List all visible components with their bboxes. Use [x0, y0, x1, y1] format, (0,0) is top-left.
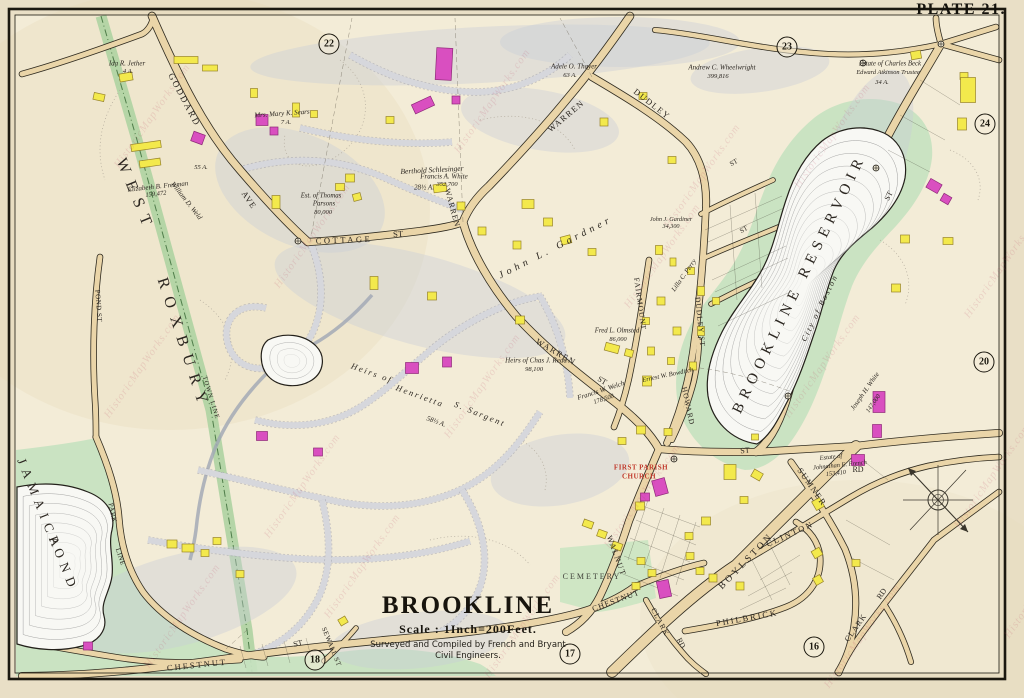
building-brick	[270, 127, 278, 135]
building-wood	[386, 117, 394, 124]
building-wood	[958, 118, 967, 130]
building-wood	[696, 568, 704, 575]
building-wood	[668, 358, 675, 365]
building-wood	[433, 183, 447, 193]
building-wood	[167, 540, 177, 548]
building-wood	[698, 287, 705, 296]
building-wood	[648, 570, 656, 577]
building-wood	[910, 50, 921, 60]
building-wood	[544, 218, 553, 226]
surveyor-credit-line1: Surveyed and Compiled by French and Brya…	[370, 640, 566, 651]
building-wood	[588, 249, 596, 256]
building-brick	[443, 357, 452, 367]
building-wood	[428, 292, 437, 300]
building-wood	[670, 258, 676, 266]
building-wood	[656, 246, 663, 255]
building-wood	[740, 497, 748, 504]
building-wood	[636, 502, 645, 510]
building-wood	[513, 241, 521, 249]
building-wood	[336, 184, 345, 191]
building-wood	[688, 268, 695, 275]
building-wood	[702, 517, 711, 525]
building-wood	[713, 298, 720, 305]
building-wood	[236, 571, 244, 578]
building-wood	[182, 544, 194, 552]
building-wood	[174, 57, 198, 64]
building-brick	[256, 115, 268, 126]
small-pond	[261, 335, 322, 385]
building-wood	[686, 553, 694, 560]
jamaica-pond	[17, 484, 113, 650]
building-wood	[901, 235, 910, 243]
building-wood	[690, 362, 697, 370]
building-wood	[673, 327, 681, 335]
title-block: BROOKLINE Scale : 1Inch=200Feet. Surveye…	[370, 592, 566, 661]
atlas-plate-page: HistoricMapWorks.comHistoricMapWorks.com…	[0, 0, 1024, 698]
building-wood	[643, 376, 652, 386]
map-title: BROOKLINE	[370, 592, 566, 620]
building-wood	[522, 200, 534, 209]
building-wood	[478, 227, 486, 235]
building-wood	[516, 316, 525, 324]
building-wood	[213, 538, 221, 545]
building-wood	[311, 111, 318, 118]
building-brick	[257, 432, 268, 441]
building-wood	[639, 93, 647, 100]
building-wood	[709, 574, 717, 582]
surveyor-credit-line2: Civil Engineers.	[370, 651, 566, 662]
plate-number-label: PLATE 21.	[916, 1, 1006, 19]
building-wood	[201, 550, 209, 557]
building-wood	[664, 429, 672, 436]
building-wood	[752, 434, 759, 440]
building-wood	[657, 297, 665, 305]
building-brick	[641, 493, 650, 501]
building-wood	[698, 327, 705, 336]
building-wood	[648, 347, 655, 355]
building-brick	[435, 48, 453, 81]
building-wood	[346, 174, 355, 182]
building-wood	[685, 533, 693, 540]
building-wood	[618, 438, 626, 445]
building-wood	[293, 103, 300, 117]
building-wood	[632, 583, 640, 590]
building-brick	[84, 642, 93, 650]
building-wood	[637, 558, 645, 565]
building-wood	[251, 89, 258, 98]
building-wood	[272, 196, 280, 209]
building-brick	[314, 448, 323, 456]
building-wood	[600, 118, 608, 126]
building-wood	[370, 277, 378, 290]
building-brick	[406, 363, 419, 374]
building-brick	[873, 392, 885, 413]
map-scale: Scale : 1Inch=200Feet.	[370, 622, 566, 637]
building-wood	[943, 238, 953, 245]
building-brick	[873, 425, 882, 438]
building-wood	[892, 284, 901, 292]
building-wood	[852, 560, 860, 567]
building-brick	[452, 96, 460, 104]
building-wood	[961, 78, 976, 103]
building-wood	[203, 65, 218, 71]
building-brick	[852, 455, 865, 466]
building-wood	[668, 157, 676, 164]
building-wood	[637, 426, 646, 434]
building-wood	[643, 318, 650, 325]
building-wood	[457, 202, 465, 210]
building-wood	[736, 582, 744, 590]
building-wood	[724, 465, 736, 480]
